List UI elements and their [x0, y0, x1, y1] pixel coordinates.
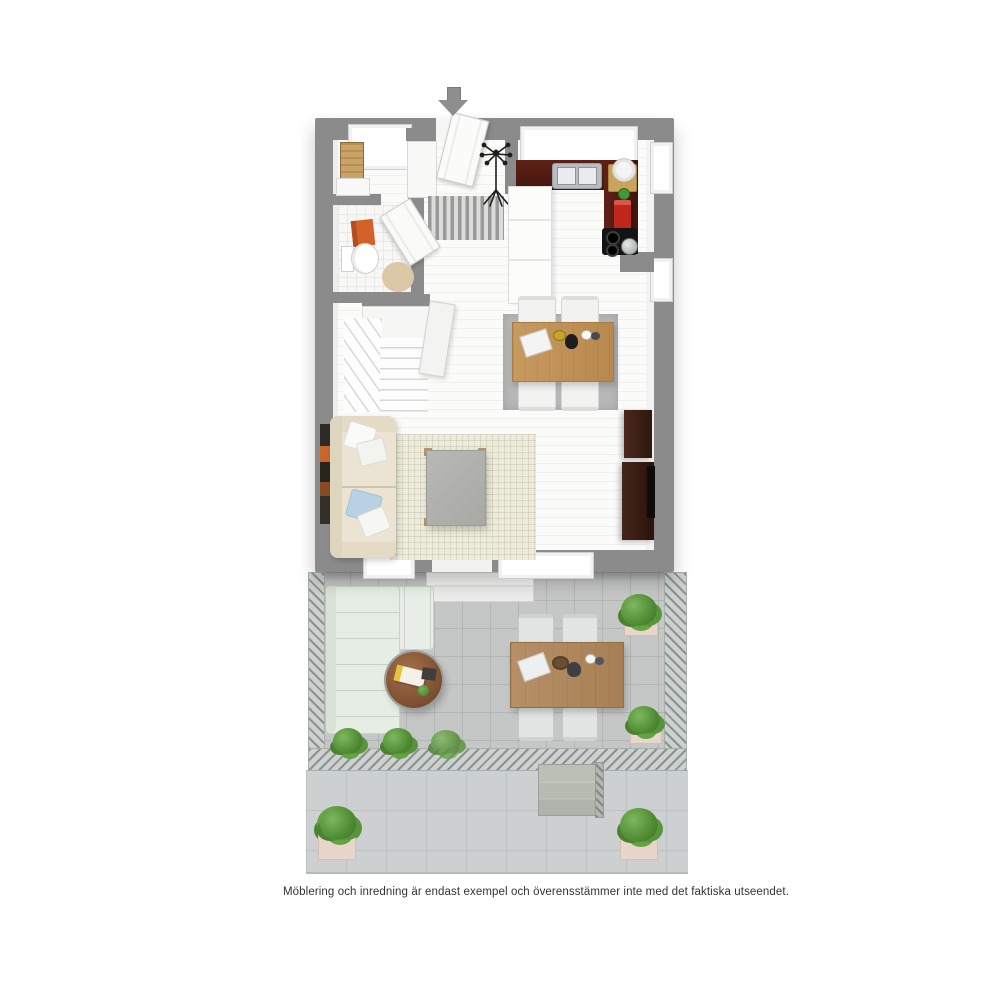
- bath-rug: [382, 262, 414, 292]
- terrace-railing-left: [308, 572, 325, 770]
- table-plant-icon: [418, 685, 429, 696]
- tray-icon: [421, 667, 437, 681]
- closet-wall-cap: [406, 128, 436, 141]
- sink-basin-left: [557, 167, 576, 185]
- burner2-icon: [606, 244, 619, 257]
- terrace-railing-right: [664, 572, 687, 754]
- stair-steps: [380, 338, 428, 412]
- outdoor-cup2-icon: [595, 657, 604, 665]
- bottle-icon: [618, 188, 630, 200]
- sink-basin-right: [578, 167, 597, 185]
- garden-steps-rail: [595, 762, 604, 818]
- hall-closet: [407, 141, 437, 198]
- outdoor-sofa-left-arm: [326, 586, 400, 734]
- kitchen-side-window: [650, 142, 673, 194]
- bowl-icon: [553, 330, 566, 341]
- terrace-bush-icon: [333, 728, 363, 754]
- entrance-arrow-icon: [438, 100, 468, 116]
- pot-icon: [621, 238, 638, 255]
- fridge-island: [508, 186, 552, 304]
- vase-icon: [565, 334, 578, 349]
- caption: Möblering och inredning är endast exempe…: [80, 886, 992, 898]
- outdoor-sofa-back: [326, 586, 336, 732]
- terrace-bush-icon: [431, 730, 461, 754]
- tv-cabinet-upper: [624, 410, 652, 458]
- burner-icon: [606, 231, 620, 245]
- toilet-bowl: [351, 243, 379, 274]
- cup2-icon: [591, 332, 600, 340]
- stair-winders: [344, 318, 382, 412]
- hall-cabinet: [336, 178, 370, 196]
- terrace-plant-top-icon: [621, 594, 657, 626]
- outdoor-chair: [562, 706, 598, 741]
- terrace-railing-bottom: [308, 748, 687, 771]
- floorplan-canvas: Möblering och inredning är endast exempe…: [0, 0, 992, 992]
- sofa-cushion-seam: [342, 486, 396, 488]
- sofa-backrest: [330, 416, 342, 558]
- radiator-ladder: [340, 142, 364, 180]
- terrace-bush-icon: [383, 728, 413, 754]
- outdoor-chair: [518, 706, 554, 741]
- counter-end-wall: [620, 252, 654, 272]
- garden-steps: [538, 764, 600, 816]
- patio-plant-left2-icon: [320, 808, 356, 840]
- jar-icon: [612, 158, 636, 182]
- tv-screen-icon: [647, 466, 655, 518]
- terrace-plant-bottom-icon: [628, 706, 660, 734]
- ottoman: [426, 450, 486, 526]
- patio-plant-right-icon: [620, 808, 658, 842]
- sofa-armrest-bottom: [342, 542, 396, 558]
- outdoor-vase-icon: [567, 662, 581, 677]
